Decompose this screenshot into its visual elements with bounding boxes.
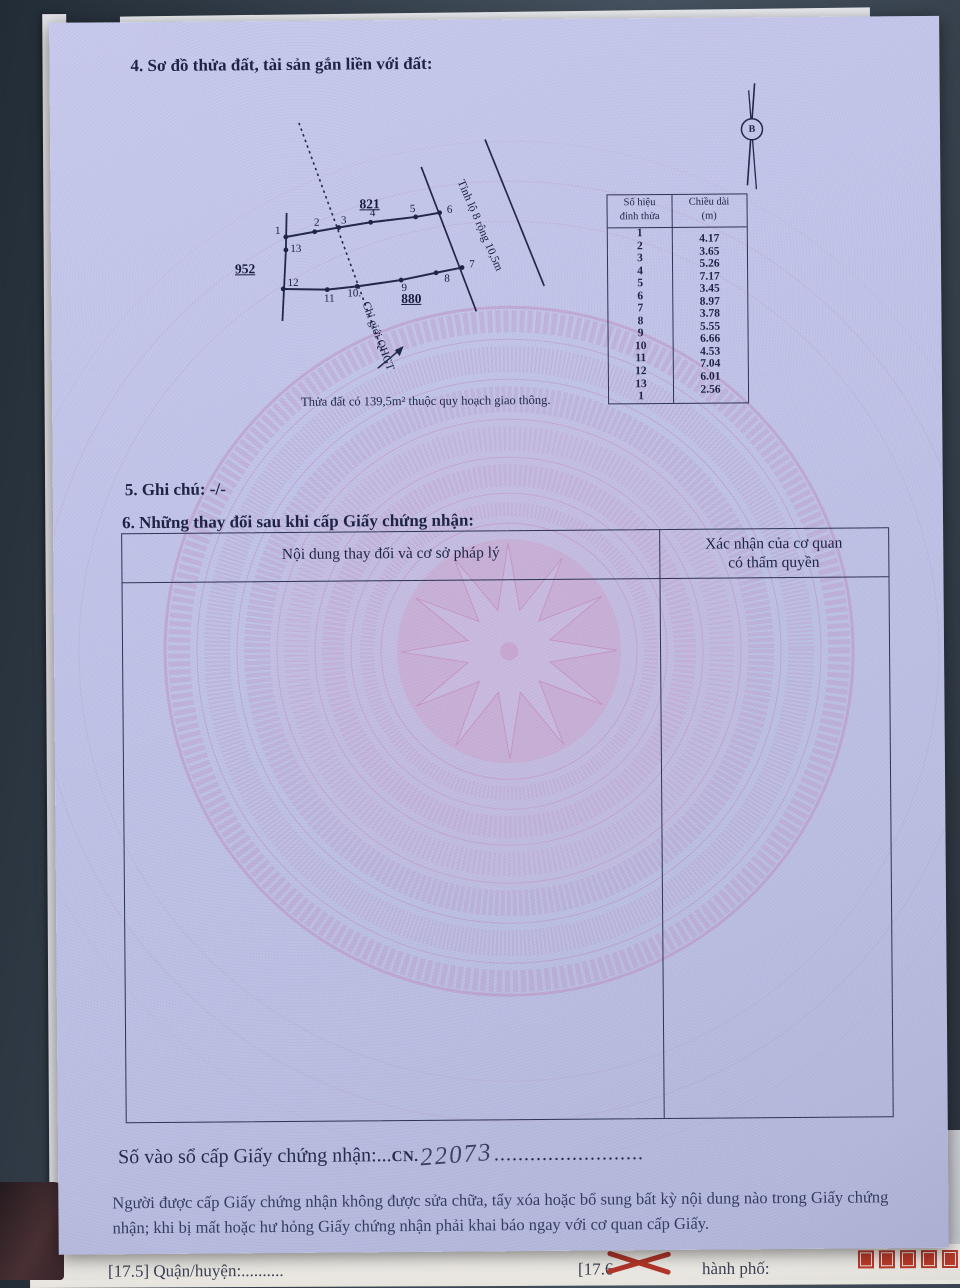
vertex-number: 13	[609, 377, 673, 390]
segment-length: 7.04	[674, 358, 747, 371]
measurement-header-col2: Chiều dài(m)	[672, 195, 745, 224]
vertex-number: 10	[609, 340, 673, 353]
segment-length: 6.66	[674, 333, 747, 346]
vertex-number: 8	[608, 315, 672, 328]
vertex-number: 12	[609, 365, 673, 378]
registry-dotted-leader: .........................	[494, 1142, 644, 1165]
certificate-warning-text: Người được cấp Giấy chứng nhận không đượ…	[112, 1184, 888, 1240]
parcel-number-label: 821	[359, 196, 379, 212]
vertex-number: 7	[608, 302, 672, 315]
vertex-number: 5	[608, 277, 672, 290]
segment-length: 5.26	[673, 257, 746, 270]
north-letter: B	[749, 124, 756, 135]
planning-note: Thửa đất có 139,5m² thuộc quy hoạch giao…	[301, 393, 550, 410]
segment-length: 3.65	[673, 245, 746, 258]
section-5-title: 5. Ghi chú: -/-	[125, 479, 226, 500]
vertex-number: 6	[608, 290, 672, 303]
red-stamp-glyphs	[858, 1250, 960, 1269]
vertex-number: 1	[609, 390, 673, 403]
segment-length: 6.01	[674, 370, 747, 383]
segment-length: 4.17	[673, 232, 746, 245]
vertex-number: 3	[608, 252, 672, 265]
registry-prefix: CN.	[392, 1149, 419, 1165]
registry-label: Số vào sổ cấp Giấy chứng nhận:...	[118, 1144, 392, 1168]
segment-length: 4.53	[674, 345, 747, 358]
segment-length: 5.55	[673, 320, 746, 333]
parcel-number-label: 952	[235, 261, 255, 277]
underlying-field-label: [17.5] Quận/huyện:..........	[108, 1261, 284, 1282]
vertex-number: 4	[608, 265, 672, 278]
measurement-table: Số hiệuđỉnh thửa Chiều dài(m) 1234567891…	[606, 193, 749, 404]
parcel-number-label: 880	[401, 291, 421, 307]
length-column: 4.173.655.267.173.458.973.785.556.664.53…	[673, 226, 747, 403]
segment-length: 8.97	[673, 295, 746, 308]
vertex-number: 11	[609, 352, 673, 365]
segment-length: 3.45	[673, 283, 746, 296]
vertex-number: 9	[609, 327, 673, 340]
vertex-number-column: 123456789101112131	[608, 227, 673, 403]
certificate-page: 4. Sơ đồ thửa đất, tài sản gắn liền với …	[49, 16, 949, 1255]
section-6-title: 6. Những thay đổi sau khi cấp Giấy chứng…	[122, 510, 474, 533]
underlying-field-label-2: hành phố:	[702, 1259, 770, 1279]
changes-table: Nội dung thay đổi và cơ sở pháp lý Xác n…	[121, 527, 894, 1123]
registry-handwritten-number: 22073	[419, 1139, 493, 1173]
segment-length: 3.78	[673, 308, 746, 321]
registry-number-line: Số vào sổ cấp Giấy chứng nhận:...CN.2207…	[118, 1137, 738, 1170]
segment-length: 2.56	[674, 383, 747, 396]
dark-book-corner	[0, 1182, 64, 1280]
vertex-number: 1	[608, 227, 672, 240]
vertex-number: 2	[608, 239, 672, 252]
red-cross-mark	[606, 1247, 672, 1277]
changes-col2-header: Xác nhận của cơ quancó thẩm quyền	[659, 533, 888, 573]
measurement-header-col1: Số hiệuđỉnh thửa	[607, 196, 671, 225]
segment-length: 7.17	[673, 270, 746, 283]
